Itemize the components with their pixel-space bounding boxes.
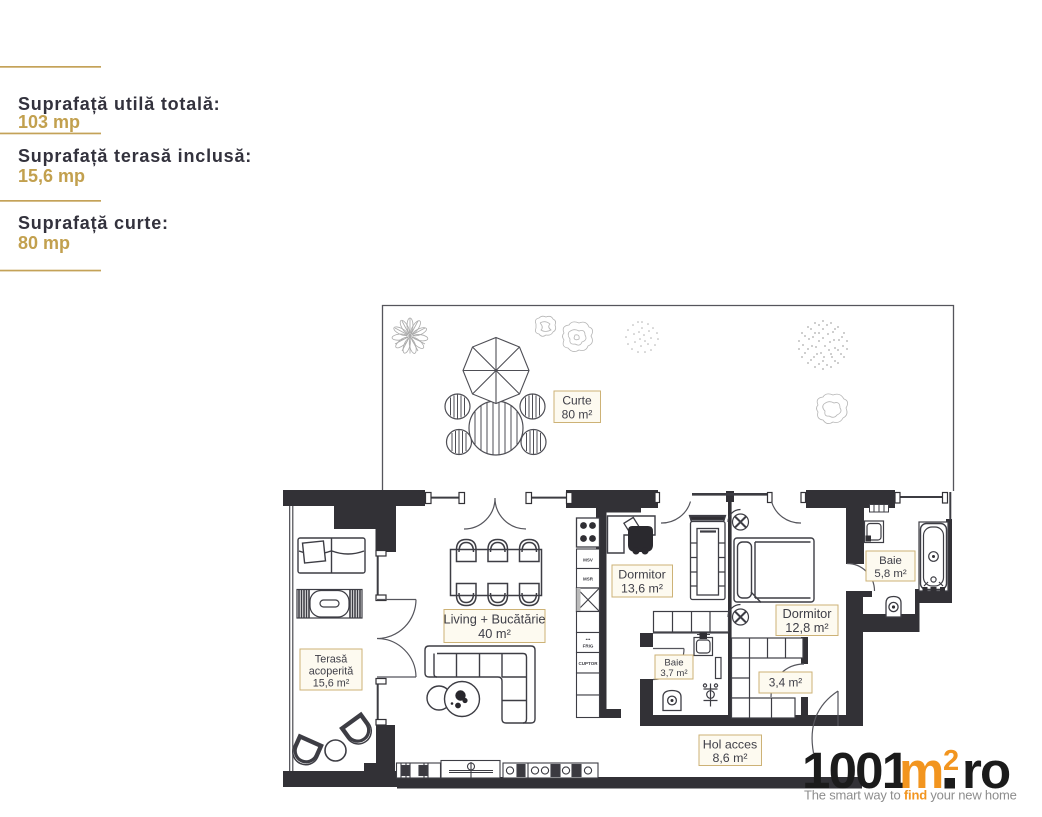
svg-text:FRIG: FRIG xyxy=(583,644,594,649)
svg-text:3,4 m²: 3,4 m² xyxy=(769,676,803,690)
svg-text:40 m²: 40 m² xyxy=(478,626,511,641)
svg-text:Hol acces: Hol acces xyxy=(703,738,757,752)
svg-text:8,6 m²: 8,6 m² xyxy=(712,751,747,765)
svg-text:Baie: Baie xyxy=(664,658,683,669)
svg-text:2: 2 xyxy=(943,745,959,777)
svg-text:5,8 m²: 5,8 m² xyxy=(874,568,906,580)
svg-text:Suprafață terasă inclusă:: Suprafață terasă inclusă: xyxy=(18,146,252,166)
svg-text:15,6 mp: 15,6 mp xyxy=(18,166,85,186)
svg-text:MSV: MSV xyxy=(583,558,593,563)
svg-text:acoperită: acoperită xyxy=(309,666,353,678)
svg-text:Curte: Curte xyxy=(562,394,592,408)
svg-text:Suprafață curte:: Suprafață curte: xyxy=(18,213,169,233)
svg-text:103 mp: 103 mp xyxy=(18,112,80,132)
svg-text:Living + Bucătărie: Living + Bucătărie xyxy=(443,612,545,627)
svg-text:3,7 m²: 3,7 m² xyxy=(660,668,688,679)
svg-text:Baie: Baie xyxy=(879,555,902,567)
svg-text:80 mp: 80 mp xyxy=(18,233,70,253)
svg-text:Dormitor: Dormitor xyxy=(618,568,666,582)
svg-text:12,8 m²: 12,8 m² xyxy=(785,620,829,635)
svg-text:80 m²: 80 m² xyxy=(562,408,593,422)
svg-text:•••: ••• xyxy=(586,637,591,642)
svg-text:Suprafață utilă totală:: Suprafață utilă totală: xyxy=(18,94,220,114)
svg-text:13,6 m²: 13,6 m² xyxy=(621,582,663,596)
svg-text:Terasă: Terasă xyxy=(315,654,347,666)
svg-text:MSR: MSR xyxy=(583,577,594,582)
svg-text:15,6 m²: 15,6 m² xyxy=(313,678,350,690)
svg-text:CUPTOR: CUPTOR xyxy=(579,661,599,666)
svg-text:The smart way to find your new: The smart way to find your new home xyxy=(804,788,1017,803)
svg-text:Dormitor: Dormitor xyxy=(782,606,832,621)
